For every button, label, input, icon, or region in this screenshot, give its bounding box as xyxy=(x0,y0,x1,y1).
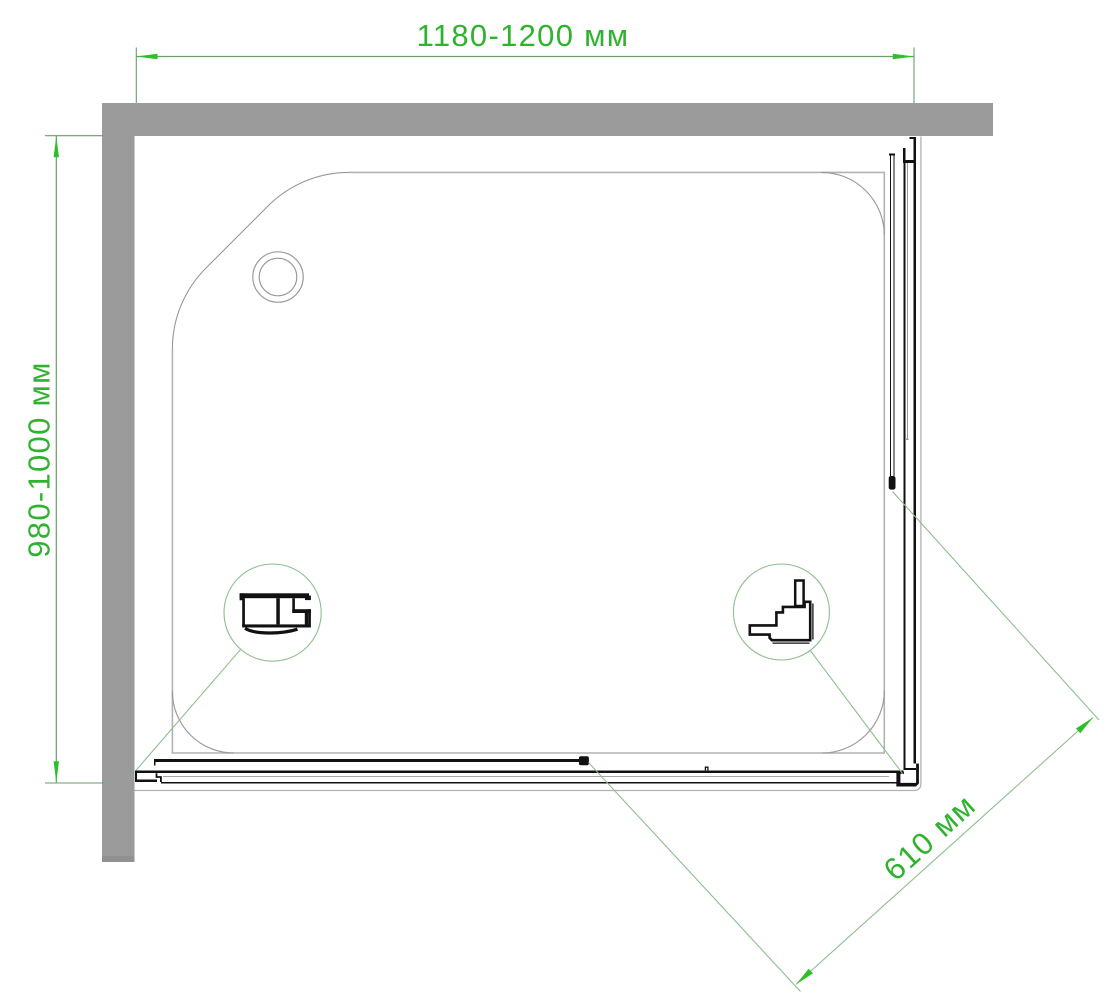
svg-text:1180-1200 мм: 1180-1200 мм xyxy=(417,18,630,53)
svg-text:980-1000 мм: 980-1000 мм xyxy=(22,361,57,558)
